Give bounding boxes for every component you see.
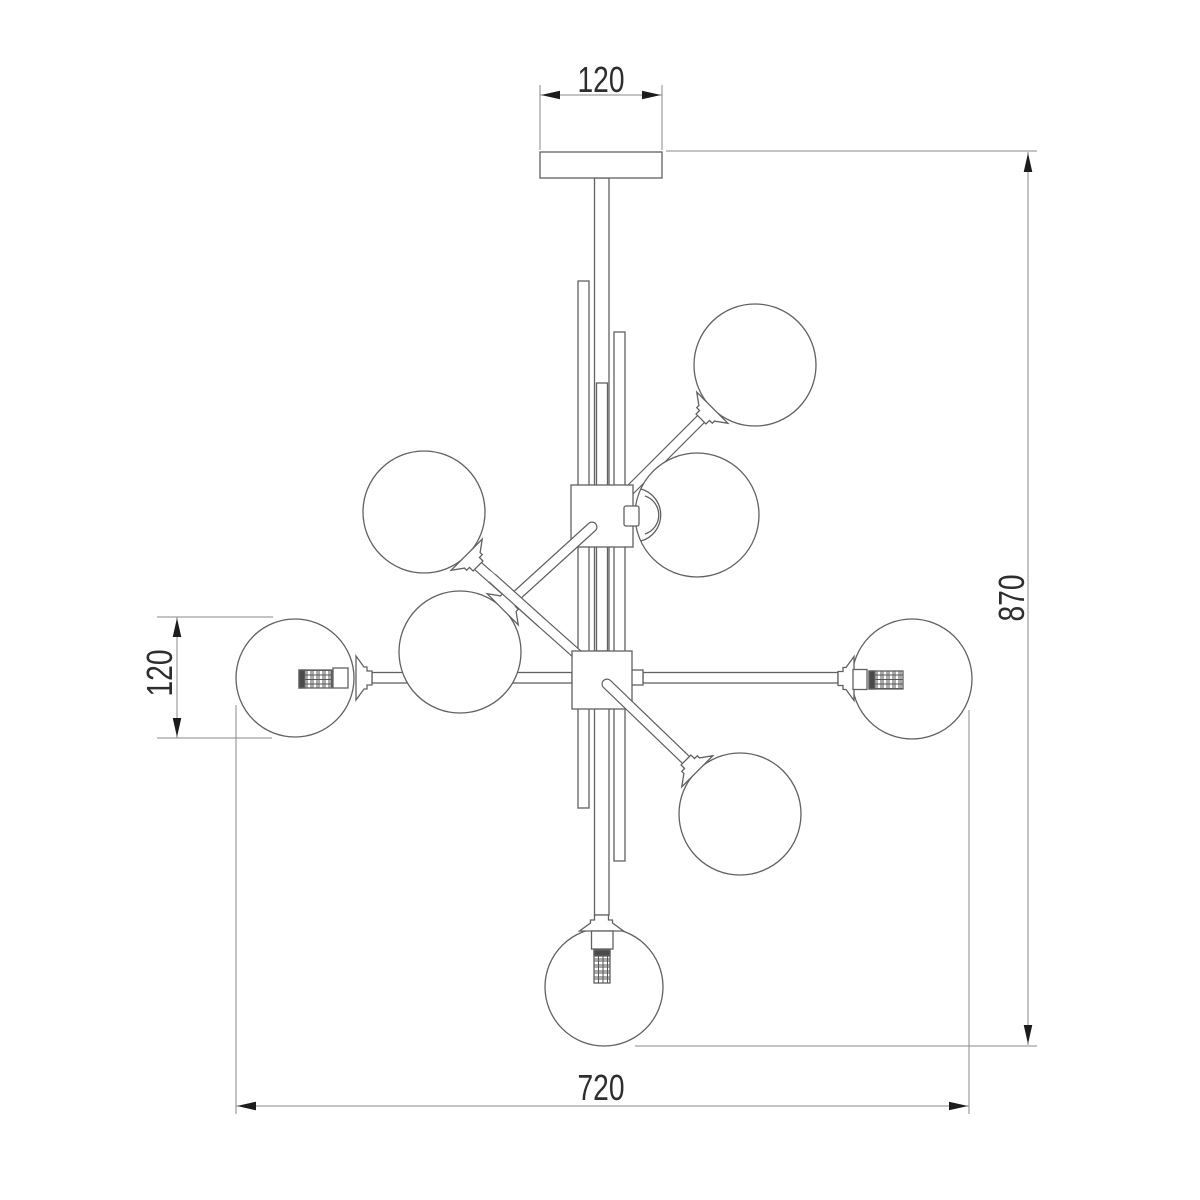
arrow-right-icon bbox=[642, 91, 661, 100]
dim-label-overall-width: 720 bbox=[578, 1067, 625, 1108]
bulb-contact-bottom bbox=[594, 950, 610, 956]
globe-holder-bottom bbox=[580, 915, 624, 931]
arm-right-horizontal bbox=[643, 673, 838, 684]
arrow-down-icon bbox=[173, 718, 182, 737]
drawing-canvas: 120 870 120 720 bbox=[0, 0, 1200, 1200]
dim-label-overall-height: 870 bbox=[991, 575, 1032, 622]
arrow-left-icon bbox=[541, 91, 560, 100]
arrow-right-icon bbox=[949, 1102, 968, 1111]
globe-holder-far-left bbox=[356, 656, 372, 700]
hub-side-tab bbox=[624, 506, 639, 526]
globe-right-middle bbox=[635, 453, 759, 577]
chandelier-technical-drawing: 120 870 120 720 bbox=[0, 0, 1200, 1200]
decor-rod-right bbox=[614, 332, 625, 861]
globe-holder-far-right bbox=[838, 657, 854, 701]
socket-far-left bbox=[333, 668, 348, 688]
socket-bottom bbox=[592, 931, 614, 949]
bulb-contact-far-left bbox=[299, 670, 305, 688]
dim-label-mount-width: 120 bbox=[578, 59, 625, 100]
arrow-down-icon bbox=[1024, 1025, 1033, 1044]
arrow-up-icon bbox=[173, 618, 182, 637]
socket-far-right bbox=[853, 670, 867, 690]
arrow-up-icon bbox=[1024, 153, 1033, 172]
arrow-left-icon bbox=[237, 1102, 256, 1111]
bulb-contact-far-right bbox=[869, 671, 875, 689]
dim-label-shade-diameter: 120 bbox=[139, 650, 180, 697]
ceiling-mount-plate bbox=[540, 152, 662, 178]
arm-right-connector bbox=[631, 670, 643, 685]
chandelier-fixture bbox=[236, 152, 972, 1046]
